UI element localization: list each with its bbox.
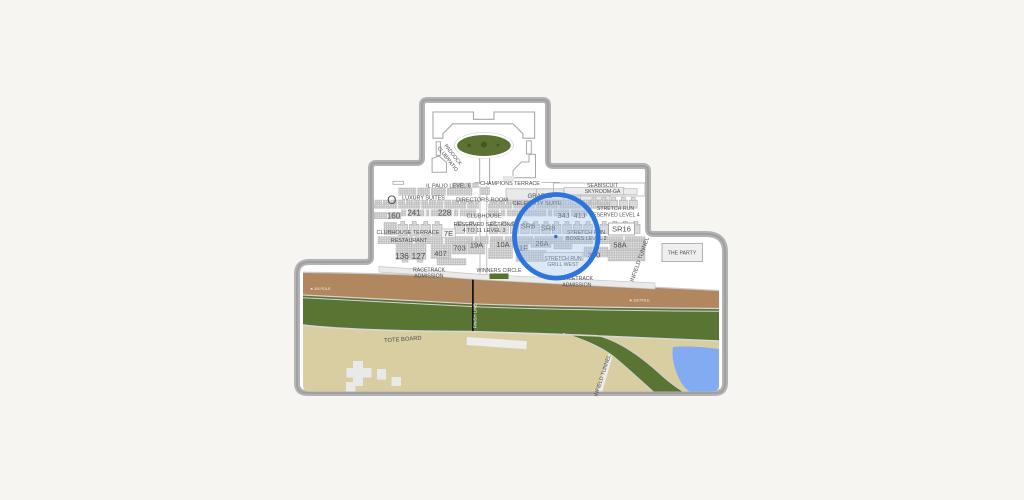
svg-text:241: 241 xyxy=(407,209,421,218)
svg-text:127: 127 xyxy=(412,252,426,261)
svg-text:WINNERS CIRCLE: WINNERS CIRCLE xyxy=(477,268,523,274)
svg-text:SR16: SR16 xyxy=(612,225,631,234)
svg-text:7E: 7E xyxy=(444,229,453,238)
svg-text:4 TO 11 LEVEL 3: 4 TO 11 LEVEL 3 xyxy=(462,228,505,234)
svg-text:ADMISSION: ADMISSION xyxy=(562,282,591,288)
svg-text:160: 160 xyxy=(387,212,401,221)
svg-text:◄ 3/8 POLE: ◄ 3/8 POLE xyxy=(309,287,331,291)
svg-text:CLUBHOUSE: CLUBHOUSE xyxy=(467,214,502,220)
svg-text:703: 703 xyxy=(453,244,466,253)
svg-text:228: 228 xyxy=(438,209,452,218)
svg-text:136: 136 xyxy=(395,252,409,261)
svg-text:◄ 1/8 POLE: ◄ 1/8 POLE xyxy=(628,299,650,303)
svg-text:19A: 19A xyxy=(470,241,483,250)
svg-text:THE PARTY: THE PARTY xyxy=(668,251,697,257)
svg-text:FINISH LINE: FINISH LINE xyxy=(472,303,477,328)
svg-text:58A: 58A xyxy=(613,241,626,250)
svg-text:LUXURY SUITES: LUXURY SUITES xyxy=(402,196,445,202)
svg-text:RESTAURANT: RESTAURANT xyxy=(391,238,428,244)
svg-text:ADMISSION: ADMISSION xyxy=(414,274,443,280)
svg-text:DIRECTORS ROOM: DIRECTORS ROOM xyxy=(456,198,508,204)
svg-text:407: 407 xyxy=(434,249,447,258)
svg-text:STRETCH RUN: STRETCH RUN xyxy=(597,206,634,212)
svg-text:CLUBHOUSE TERRACE: CLUBHOUSE TERRACE xyxy=(377,230,440,236)
svg-text:CHAMPIONS TERRACE: CHAMPIONS TERRACE xyxy=(480,181,540,187)
svg-text:10A: 10A xyxy=(496,240,509,249)
svg-text:RACETRACK: RACETRACK xyxy=(413,267,446,273)
svg-text:RESERVED LEVEL 4: RESERVED LEVEL 4 xyxy=(589,212,639,218)
svg-text:SKYROOM-GA: SKYROOM-GA xyxy=(585,189,621,195)
svg-text:IL PALIO LEVEL 6: IL PALIO LEVEL 6 xyxy=(426,183,471,189)
svg-text:O: O xyxy=(387,193,396,207)
svg-text:SEABISCUIT: SEABISCUIT xyxy=(587,183,619,189)
